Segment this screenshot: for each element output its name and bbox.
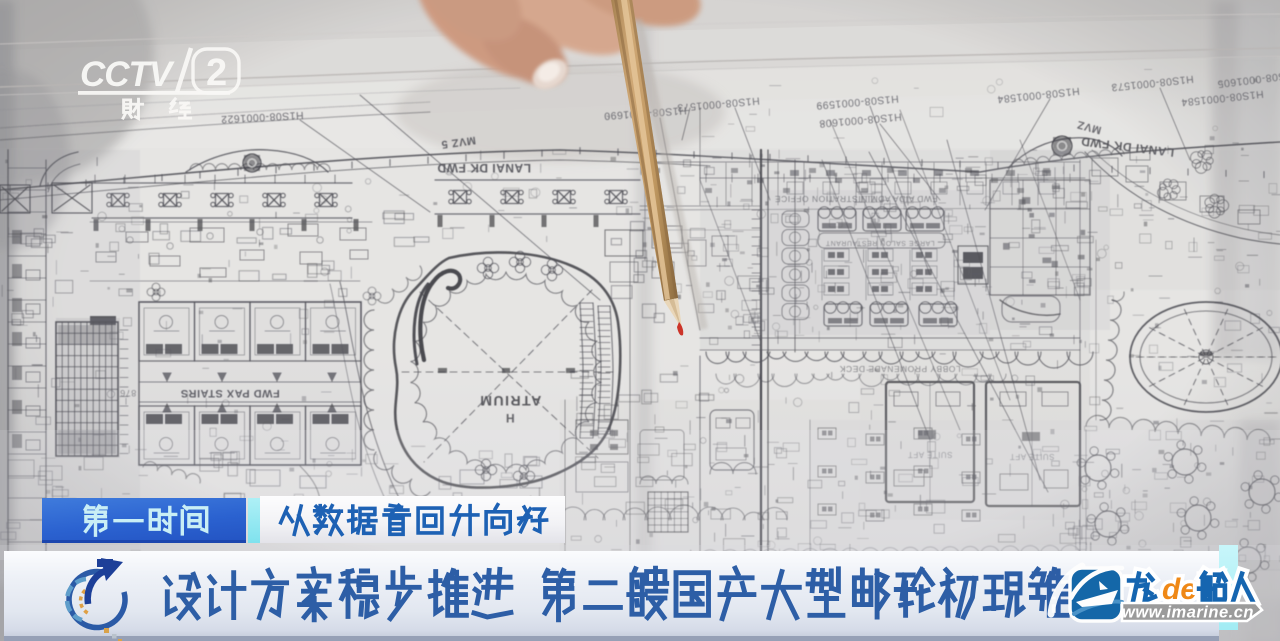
svg-text:de: de [1162,573,1197,606]
svg-text:www.imarine.cn: www.imarine.cn [1122,604,1254,622]
